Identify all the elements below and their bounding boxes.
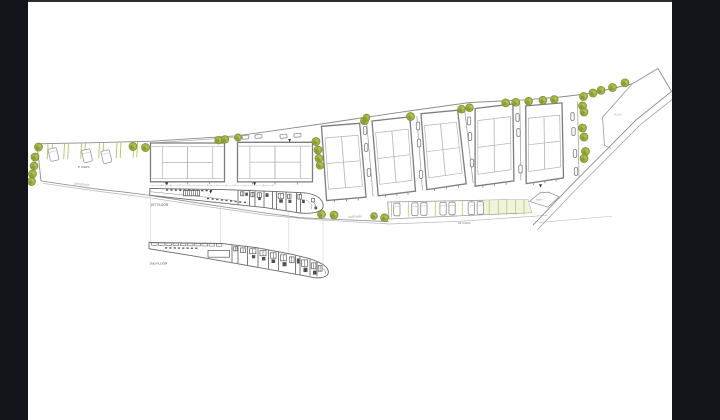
svg-text:56 CARS: 56 CARS xyxy=(458,221,471,225)
svg-text:2ND FLOOR: 2ND FLOOR xyxy=(150,261,168,265)
svg-text:RAMP: RAMP xyxy=(536,199,543,202)
svg-text:1ST FLOOR: 1ST FLOOR xyxy=(150,203,168,207)
svg-text:PLAZA: PLAZA xyxy=(614,114,622,117)
svg-text:CARPARK: CARPARK xyxy=(348,215,362,219)
svg-text:P CARS: P CARS xyxy=(78,165,89,169)
